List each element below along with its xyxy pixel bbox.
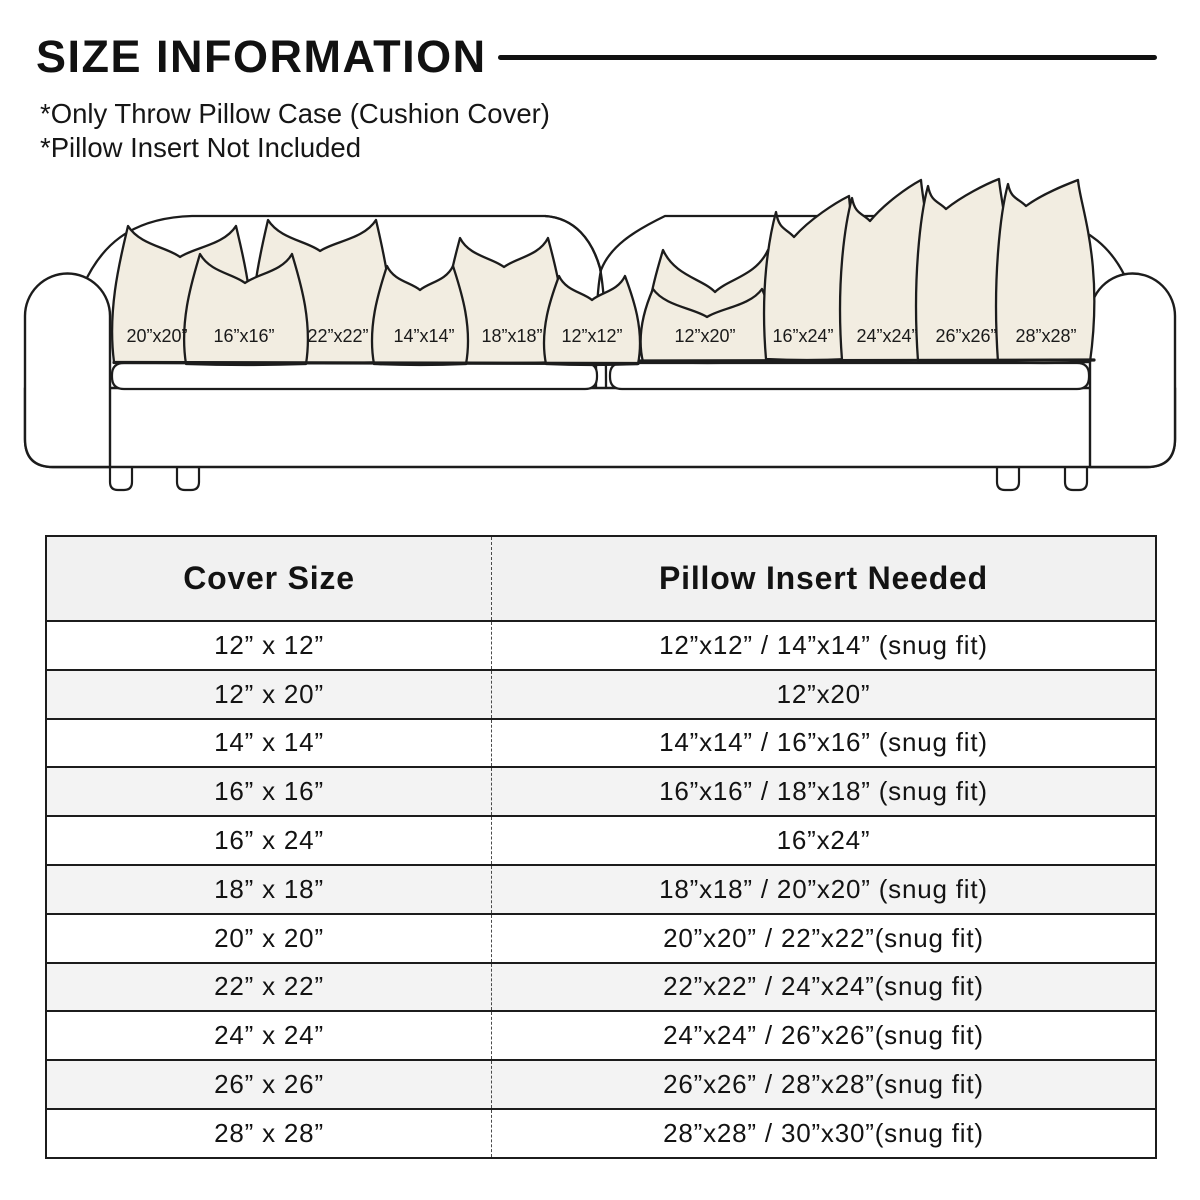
svg-text:12”x20”: 12”x20” [674,326,735,346]
svg-text:20”x20”: 20”x20” [126,326,187,346]
svg-text:14”x14”: 14”x14” [393,326,454,346]
svg-text:22”x22”: 22”x22” [307,326,368,346]
svg-text:24”x24”: 24”x24” [856,326,917,346]
svg-text:26”x26”: 26”x26” [935,326,996,346]
svg-text:18”x18”: 18”x18” [481,326,542,346]
svg-text:28”x28”: 28”x28” [1015,326,1076,346]
svg-text:16”x16”: 16”x16” [213,326,274,346]
svg-text:16”x24”: 16”x24” [772,326,833,346]
svg-text:12”x12”: 12”x12” [561,326,622,346]
